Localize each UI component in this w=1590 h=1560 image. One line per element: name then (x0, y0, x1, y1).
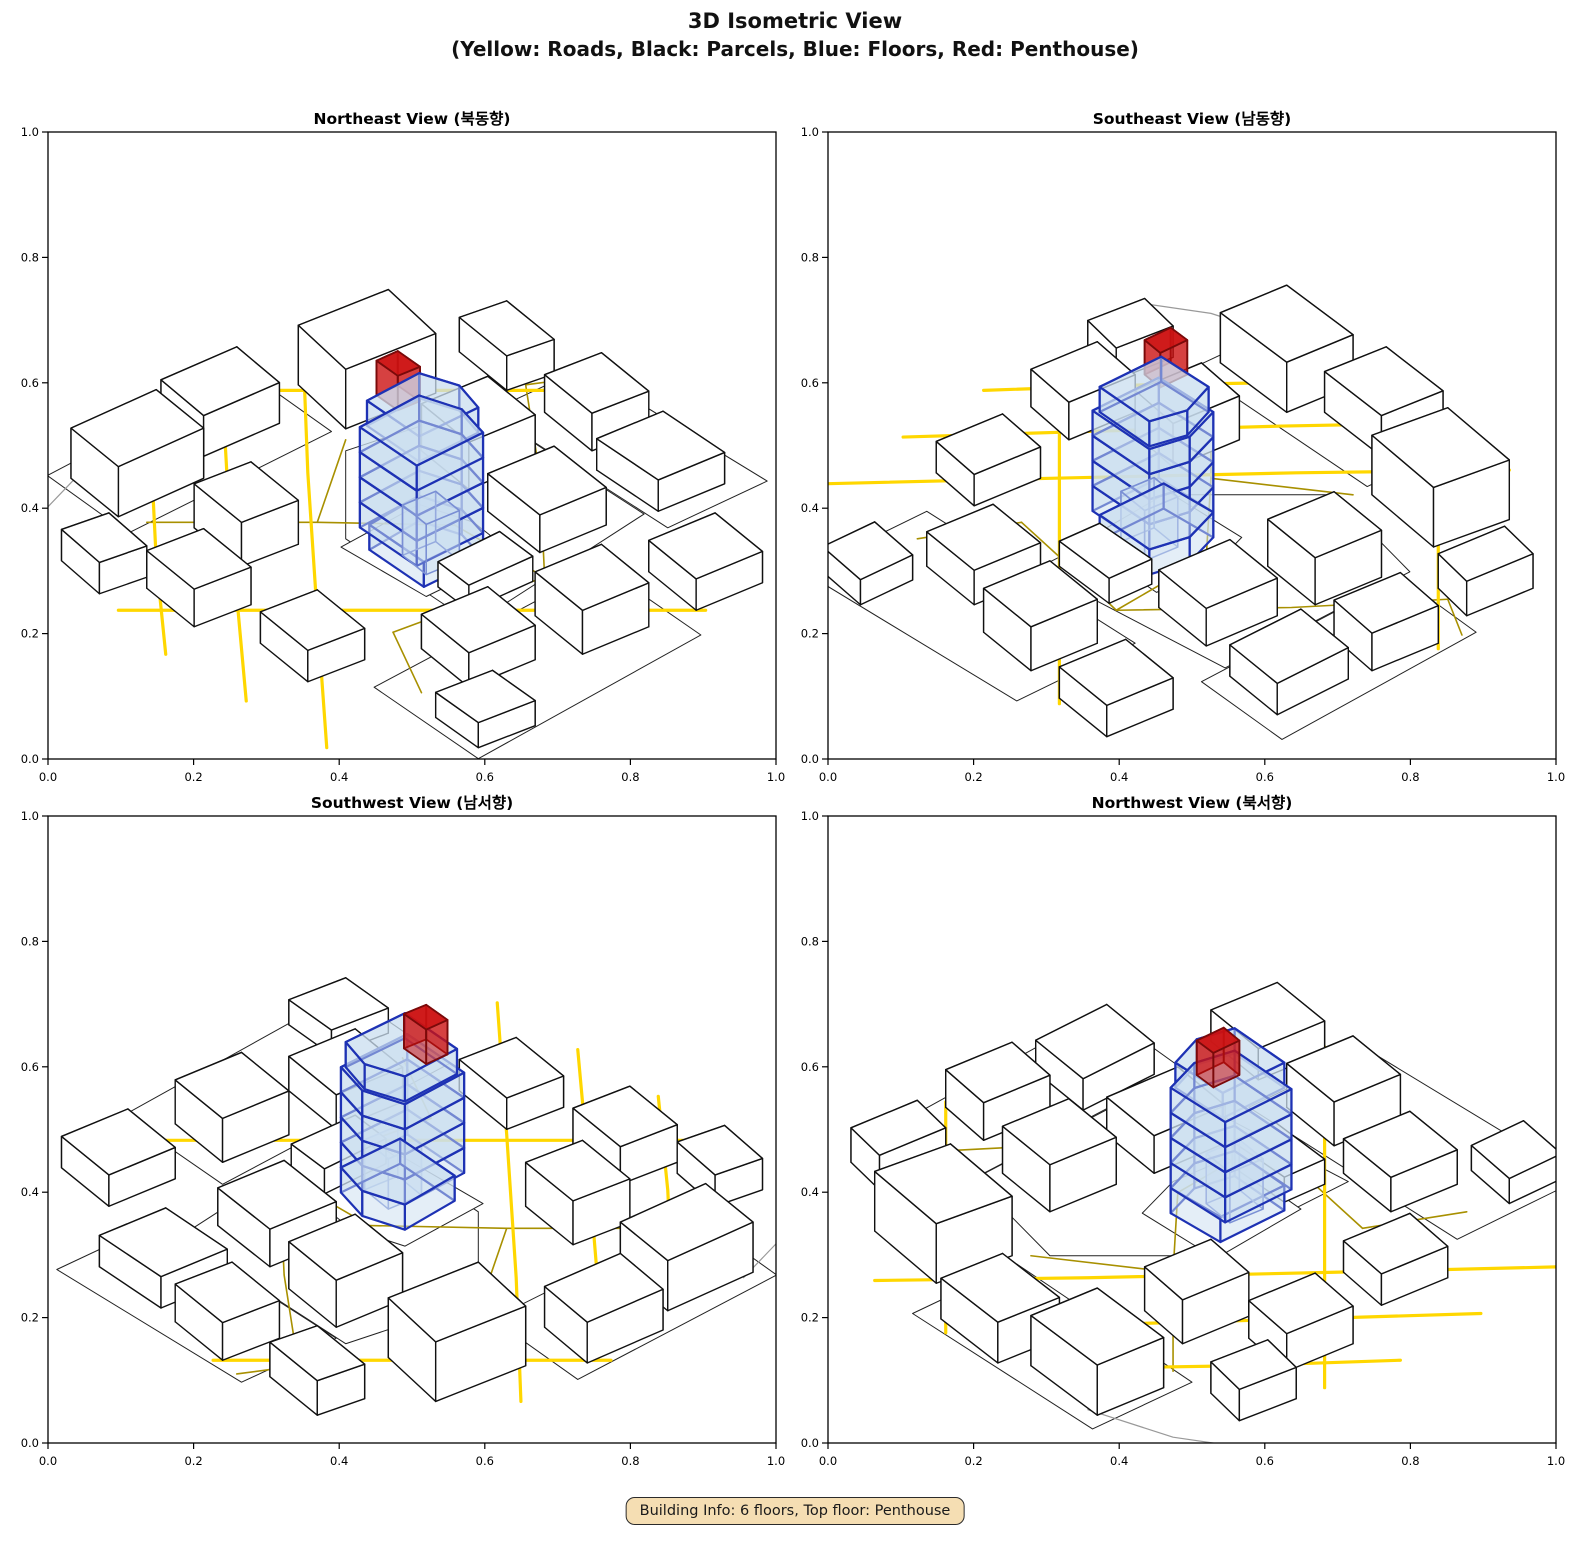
x-axis-tick-label: 0.8 (1401, 1454, 1419, 1468)
figure-subtitle: (Yellow: Roads, Black: Parcels, Blue: Fl… (0, 36, 1590, 63)
y-axis-tick-label: 0.8 (21, 934, 39, 948)
x-axis-tick-label: 0.6 (1256, 770, 1274, 784)
y-axis-tick-label: 0.0 (21, 1436, 39, 1450)
subplot-northeast: Northeast View (북동향) 0.00.00.20.20.40.40… (0, 108, 790, 784)
building-info-text: Building Info: 6 floors, Top floor: Pent… (640, 1503, 951, 1519)
figure-title: 3D Isometric View (0, 6, 1590, 36)
y-axis-tick-label: 0.6 (21, 376, 39, 390)
y-axis-tick-label: 0.2 (21, 627, 39, 641)
building-prism (649, 513, 763, 610)
building-prism (459, 301, 554, 390)
y-axis-tick-label: 0.4 (801, 501, 819, 515)
y-axis-tick-label: 0.0 (21, 752, 39, 766)
scene-layer (14, 290, 767, 759)
x-axis-tick-label: 0.4 (330, 1454, 348, 1468)
y-axis-tick-label: 1.0 (21, 125, 39, 139)
x-axis-tick-label: 0.0 (39, 770, 57, 784)
prisms-layer (823, 285, 1533, 736)
x-axis-tick-label: 0.8 (621, 1454, 639, 1468)
scene-layer (851, 983, 1570, 1449)
x-axis-tick-label: 1.0 (1547, 1454, 1565, 1468)
x-axis-tick-label: 0.6 (1256, 1454, 1274, 1468)
x-axis-tick-label: 0.0 (819, 770, 837, 784)
y-axis-tick-label: 1.0 (21, 809, 39, 823)
scene-layer (57, 978, 790, 1415)
plot-canvas-southwest: Southwest View (남서향) 0.00.00.20.20.40.40… (0, 792, 790, 1468)
x-axis-tick-label: 0.2 (184, 770, 202, 784)
penthouse-prism (1197, 1028, 1240, 1088)
y-axis-tick-label: 0.4 (21, 501, 39, 515)
plot-canvas-northeast: Northeast View (북동향) 0.00.00.20.20.40.40… (0, 108, 790, 784)
x-axis-tick-label: 0.8 (1401, 770, 1419, 784)
y-axis-tick-label: 1.0 (801, 125, 819, 139)
building-prism (1344, 1213, 1448, 1305)
y-axis-tick-label: 0.6 (21, 1060, 39, 1074)
building-prism (936, 414, 1040, 506)
subplot-title-northeast: Northeast View (북동향) (314, 109, 511, 128)
figure-header: 3D Isometric View (Yellow: Roads, Black:… (0, 6, 1590, 63)
y-axis-tick-label: 0.2 (801, 627, 819, 641)
x-axis-tick-label: 0.8 (621, 770, 639, 784)
y-axis-tick-label: 0.6 (801, 376, 819, 390)
scene-layer (804, 285, 1533, 739)
y-axis-tick-label: 0.0 (801, 1436, 819, 1450)
plot-canvas-southeast: Southeast View (남동향) 0.00.00.20.20.40.40… (780, 108, 1570, 784)
building-info-badge: Building Info: 6 floors, Top floor: Pent… (626, 1497, 965, 1525)
x-axis-tick-label: 0.2 (964, 770, 982, 784)
y-axis-tick-label: 0.8 (801, 250, 819, 264)
y-axis-tick-label: 0.8 (801, 934, 819, 948)
subplot-title-northwest: Northwest View (북서향) (1092, 793, 1293, 812)
x-axis-tick-label: 0.0 (39, 1454, 57, 1468)
x-axis-tick-label: 0.2 (964, 1454, 982, 1468)
x-axis-tick-label: 0.4 (1110, 1454, 1128, 1468)
y-axis-tick-label: 0.0 (801, 752, 819, 766)
x-axis-tick-label: 0.4 (1110, 770, 1128, 784)
y-axis-tick-label: 0.2 (801, 1311, 819, 1325)
building-prism (459, 1037, 563, 1129)
y-axis-tick-label: 0.2 (21, 1311, 39, 1325)
x-axis-tick-label: 0.6 (476, 770, 494, 784)
figure: 3D Isometric View (Yellow: Roads, Black:… (0, 0, 1590, 1560)
x-axis-tick-label: 0.4 (330, 770, 348, 784)
subplot-northwest: Northwest View (북서향) 0.00.00.20.20.40.40… (780, 792, 1570, 1468)
plot-canvas-northwest: Northwest View (북서향) 0.00.00.20.20.40.40… (780, 792, 1570, 1468)
y-axis-tick-label: 0.8 (21, 250, 39, 264)
prisms-layer (62, 978, 763, 1415)
road-major-line (303, 349, 327, 748)
x-axis-tick-label: 0.0 (819, 1454, 837, 1468)
y-axis-tick-label: 0.6 (801, 1060, 819, 1074)
subplot-southwest: Southwest View (남서향) 0.00.00.20.20.40.40… (0, 792, 790, 1468)
road-minor-line (317, 440, 345, 522)
subplot-title-southwest: Southwest View (남서향) (311, 793, 513, 812)
x-axis-tick-label: 1.0 (1547, 770, 1565, 784)
y-axis-tick-label: 1.0 (801, 809, 819, 823)
subplot-title-southeast: Southeast View (남동향) (1093, 109, 1292, 128)
building-prism (260, 590, 364, 682)
subplot-southeast: Southeast View (남동향) 0.00.00.20.20.40.40… (780, 108, 1570, 784)
x-axis-tick-label: 0.6 (476, 1454, 494, 1468)
building-prism (1372, 408, 1509, 547)
y-axis-tick-label: 0.4 (21, 1185, 39, 1199)
x-axis-tick-label: 0.2 (184, 1454, 202, 1468)
y-axis-tick-label: 0.4 (801, 1185, 819, 1199)
